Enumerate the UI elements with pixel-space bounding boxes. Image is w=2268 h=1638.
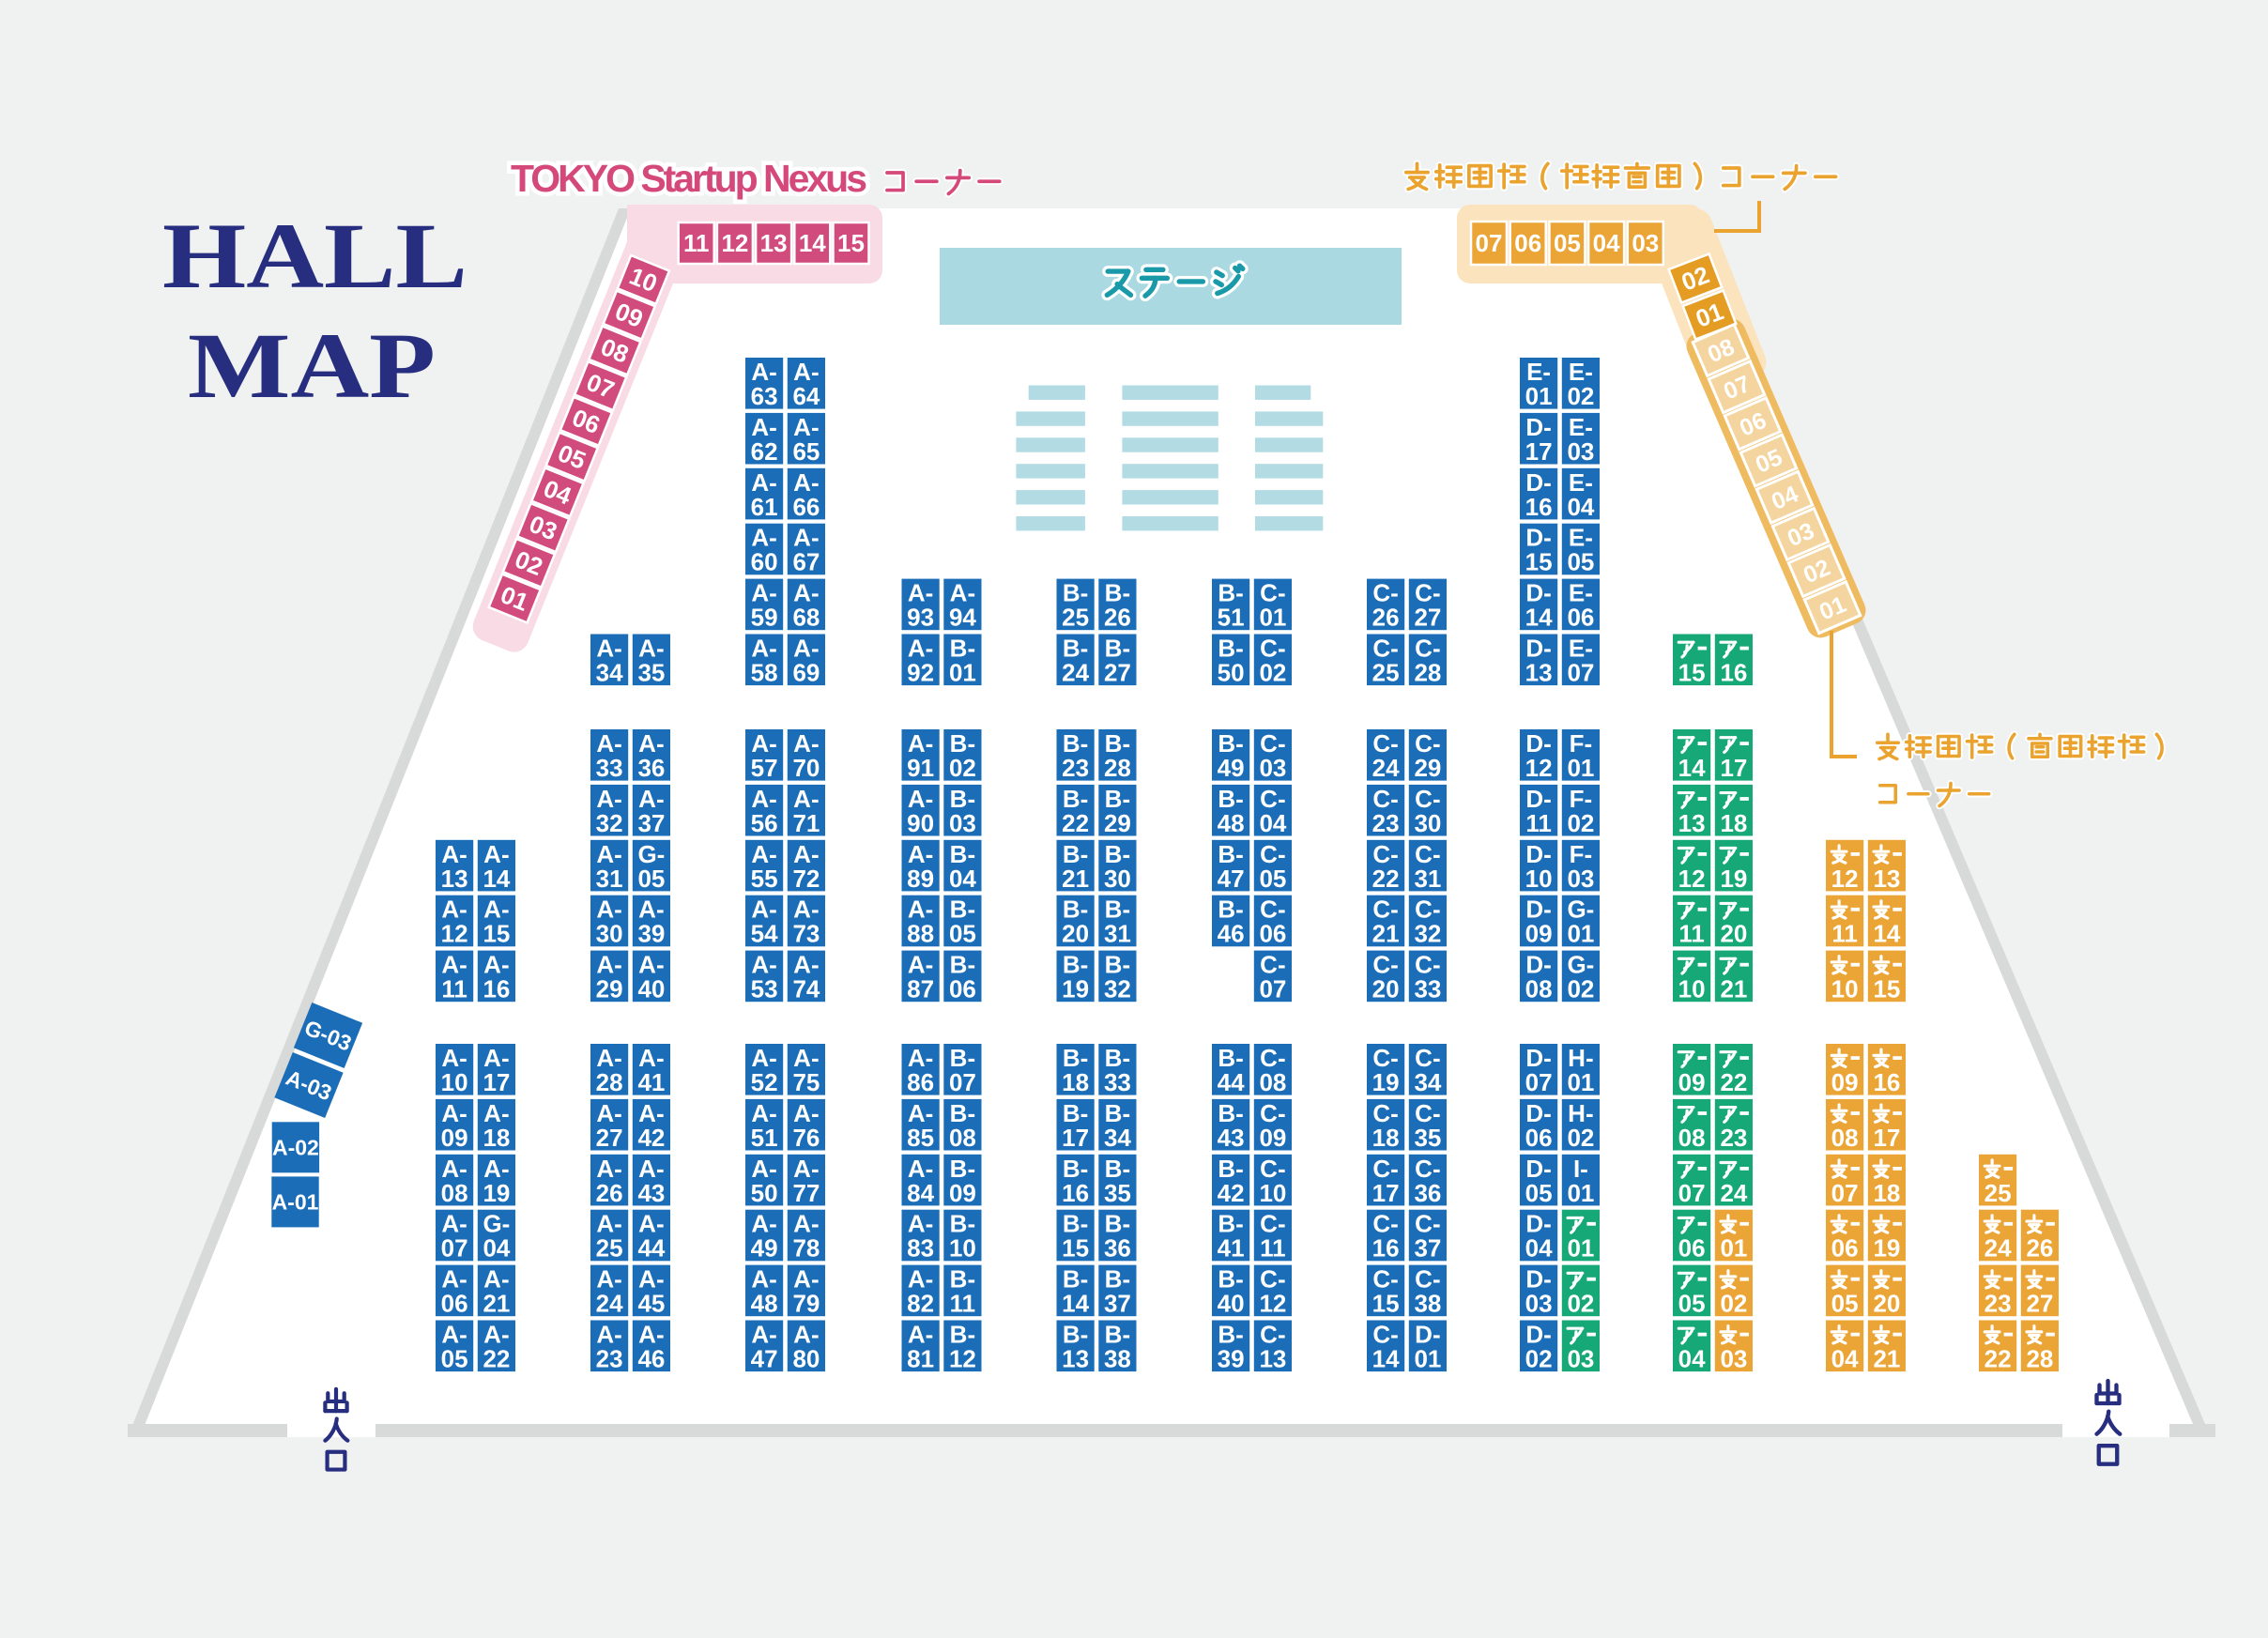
svg-text:A-02: A-02 xyxy=(272,1135,319,1159)
svg-text:25: 25 xyxy=(1984,1179,2012,1207)
svg-text:21: 21 xyxy=(1062,865,1089,893)
svg-text:21: 21 xyxy=(483,1290,510,1318)
svg-text:A-01: A-01 xyxy=(272,1189,319,1214)
svg-text:19: 19 xyxy=(1873,1234,1900,1263)
svg-text:26: 26 xyxy=(1104,604,1131,632)
svg-text:48: 48 xyxy=(1218,809,1245,837)
svg-text:08: 08 xyxy=(1678,1124,1706,1152)
svg-text:07: 07 xyxy=(1567,659,1594,687)
svg-text:06: 06 xyxy=(441,1290,468,1318)
svg-text:73: 73 xyxy=(792,920,820,948)
svg-text:86: 86 xyxy=(907,1068,934,1096)
svg-text:28: 28 xyxy=(1104,754,1131,782)
svg-text:10: 10 xyxy=(441,1068,468,1096)
svg-text:62: 62 xyxy=(751,437,778,466)
svg-text:15: 15 xyxy=(837,229,865,257)
svg-text:40: 40 xyxy=(1218,1290,1245,1318)
svg-text:12: 12 xyxy=(721,229,748,257)
svg-text:17: 17 xyxy=(1372,1179,1400,1207)
svg-text:14: 14 xyxy=(1678,754,1706,782)
svg-text:78: 78 xyxy=(792,1234,820,1263)
svg-text:16: 16 xyxy=(1720,659,1747,687)
svg-text:92: 92 xyxy=(907,659,934,687)
svg-text:03: 03 xyxy=(1567,437,1594,466)
svg-text:20: 20 xyxy=(1873,1290,1900,1318)
svg-text:18: 18 xyxy=(1873,1179,1900,1207)
svg-text:08: 08 xyxy=(441,1179,468,1207)
svg-text:45: 45 xyxy=(637,1290,665,1318)
svg-text:11: 11 xyxy=(1525,809,1552,837)
svg-text:61: 61 xyxy=(751,493,778,521)
svg-text:09: 09 xyxy=(1259,1124,1286,1152)
svg-text:14: 14 xyxy=(483,865,510,893)
svg-text:66: 66 xyxy=(792,493,820,521)
svg-text:19: 19 xyxy=(1720,865,1747,893)
svg-text:05: 05 xyxy=(441,1345,468,1373)
svg-text:32: 32 xyxy=(1104,975,1131,1003)
svg-text:16: 16 xyxy=(483,975,510,1003)
svg-text:13: 13 xyxy=(760,229,788,257)
svg-text:25: 25 xyxy=(1372,659,1400,687)
svg-text:23: 23 xyxy=(1062,754,1089,782)
svg-text:04: 04 xyxy=(1567,493,1594,521)
svg-text:06: 06 xyxy=(1525,1124,1553,1152)
svg-text:49: 49 xyxy=(751,1234,778,1263)
svg-text:16: 16 xyxy=(1062,1179,1089,1207)
svg-text:39: 39 xyxy=(1218,1345,1245,1373)
svg-text:41: 41 xyxy=(1218,1234,1245,1263)
svg-text:16: 16 xyxy=(1372,1234,1400,1263)
svg-text:06: 06 xyxy=(1259,920,1286,948)
svg-text:04: 04 xyxy=(483,1234,510,1263)
svg-text:02: 02 xyxy=(1567,1124,1594,1152)
svg-text:31: 31 xyxy=(1104,920,1131,948)
svg-text:34: 34 xyxy=(1414,1068,1441,1096)
svg-text:07: 07 xyxy=(441,1234,468,1263)
svg-text:57: 57 xyxy=(751,754,778,782)
svg-text:22: 22 xyxy=(1372,865,1400,893)
svg-text:17: 17 xyxy=(1525,437,1553,466)
svg-text:14: 14 xyxy=(1873,920,1900,948)
svg-text:11: 11 xyxy=(1260,1234,1286,1263)
svg-text:31: 31 xyxy=(1414,865,1441,893)
svg-text:03: 03 xyxy=(1567,1345,1594,1373)
svg-text:67: 67 xyxy=(792,548,820,576)
svg-text:05: 05 xyxy=(637,865,665,893)
svg-text:19: 19 xyxy=(1062,975,1089,1003)
svg-text:20: 20 xyxy=(1372,975,1400,1003)
svg-text:46: 46 xyxy=(637,1345,665,1373)
svg-text:05: 05 xyxy=(1259,865,1286,893)
svg-text:13: 13 xyxy=(1873,865,1900,893)
svg-text:01: 01 xyxy=(1567,1234,1594,1263)
svg-text:88: 88 xyxy=(907,920,934,948)
svg-text:26: 26 xyxy=(1372,604,1400,632)
svg-text:12: 12 xyxy=(1678,865,1706,893)
svg-text:82: 82 xyxy=(907,1290,934,1318)
svg-text:HALL: HALL xyxy=(162,204,467,308)
svg-text:11: 11 xyxy=(1831,920,1858,948)
svg-text:85: 85 xyxy=(907,1124,934,1152)
svg-text:29: 29 xyxy=(596,975,623,1003)
svg-text:68: 68 xyxy=(792,604,820,632)
svg-text:20: 20 xyxy=(1062,920,1089,948)
svg-text:07: 07 xyxy=(1831,1179,1859,1207)
svg-text:05: 05 xyxy=(1554,229,1581,257)
svg-text:02: 02 xyxy=(1567,1290,1594,1318)
svg-text:77: 77 xyxy=(792,1179,820,1207)
svg-text:25: 25 xyxy=(596,1234,623,1263)
svg-text:54: 54 xyxy=(751,920,778,948)
svg-text:21: 21 xyxy=(1720,975,1747,1003)
svg-text:23: 23 xyxy=(1372,809,1400,837)
svg-text:27: 27 xyxy=(1104,659,1131,687)
svg-text:17: 17 xyxy=(1873,1124,1900,1152)
svg-text:03: 03 xyxy=(1525,1290,1553,1318)
svg-text:03: 03 xyxy=(1720,1345,1747,1373)
svg-text:12: 12 xyxy=(949,1345,976,1373)
svg-text:41: 41 xyxy=(637,1068,665,1096)
svg-text:27: 27 xyxy=(1414,604,1441,632)
svg-text:33: 33 xyxy=(1414,975,1441,1003)
svg-text:14: 14 xyxy=(1525,604,1553,632)
svg-text:87: 87 xyxy=(907,975,934,1003)
svg-text:40: 40 xyxy=(637,975,665,1003)
svg-text:09: 09 xyxy=(1831,1068,1859,1096)
svg-text:01: 01 xyxy=(949,659,976,687)
svg-text:11: 11 xyxy=(683,229,710,257)
svg-text:27: 27 xyxy=(596,1124,623,1152)
svg-text:59: 59 xyxy=(751,604,778,632)
svg-text:36: 36 xyxy=(1414,1179,1441,1207)
svg-text:56: 56 xyxy=(751,809,778,837)
svg-text:37: 37 xyxy=(1104,1290,1131,1318)
svg-text:01: 01 xyxy=(1567,754,1594,782)
svg-text:33: 33 xyxy=(596,754,623,782)
svg-text:91: 91 xyxy=(907,754,934,782)
svg-text:15: 15 xyxy=(1062,1234,1089,1263)
svg-text:81: 81 xyxy=(907,1345,934,1373)
svg-text:38: 38 xyxy=(1104,1345,1131,1373)
svg-text:37: 37 xyxy=(637,809,665,837)
svg-text:22: 22 xyxy=(1720,1068,1747,1096)
svg-text:38: 38 xyxy=(1414,1290,1441,1318)
svg-text:08: 08 xyxy=(1831,1124,1859,1152)
svg-text:20: 20 xyxy=(1720,920,1747,948)
svg-text:11: 11 xyxy=(1678,920,1705,948)
svg-text:63: 63 xyxy=(751,382,778,410)
svg-text:10: 10 xyxy=(1525,865,1553,893)
svg-text:12: 12 xyxy=(441,920,468,948)
svg-text:17: 17 xyxy=(1720,754,1747,782)
svg-text:13: 13 xyxy=(441,865,468,893)
svg-text:09: 09 xyxy=(441,1124,468,1152)
svg-text:29: 29 xyxy=(1104,809,1131,837)
svg-text:74: 74 xyxy=(792,975,820,1003)
svg-text:23: 23 xyxy=(596,1345,623,1373)
svg-text:72: 72 xyxy=(792,865,820,893)
svg-text:06: 06 xyxy=(949,975,976,1003)
svg-text:MAP: MAP xyxy=(188,314,436,418)
svg-text:70: 70 xyxy=(792,754,820,782)
svg-text:31: 31 xyxy=(596,865,623,893)
svg-text:16: 16 xyxy=(1525,493,1553,521)
svg-text:01: 01 xyxy=(1259,604,1286,632)
svg-text:30: 30 xyxy=(1414,809,1441,837)
svg-text:02: 02 xyxy=(1720,1290,1747,1318)
svg-text:18: 18 xyxy=(1720,809,1747,837)
svg-text:16: 16 xyxy=(1873,1068,1900,1096)
svg-text:09: 09 xyxy=(1525,920,1553,948)
svg-text:10: 10 xyxy=(1678,975,1706,1003)
svg-text:19: 19 xyxy=(1372,1068,1400,1096)
svg-text:43: 43 xyxy=(637,1179,665,1207)
svg-text:26: 26 xyxy=(2026,1234,2053,1263)
svg-text:10: 10 xyxy=(949,1234,976,1263)
svg-text:12: 12 xyxy=(1831,865,1859,893)
svg-text:05: 05 xyxy=(1525,1179,1553,1207)
svg-text:24: 24 xyxy=(1062,659,1089,687)
svg-text:02: 02 xyxy=(1567,809,1594,837)
svg-text:23: 23 xyxy=(1720,1124,1747,1152)
svg-text:51: 51 xyxy=(751,1124,778,1152)
svg-text:26: 26 xyxy=(596,1179,623,1207)
svg-text:24: 24 xyxy=(1720,1179,1747,1207)
svg-text:93: 93 xyxy=(907,604,934,632)
svg-text:11: 11 xyxy=(441,975,467,1003)
svg-text:09: 09 xyxy=(1678,1068,1706,1096)
svg-text:42: 42 xyxy=(1218,1179,1245,1207)
svg-text:04: 04 xyxy=(1831,1345,1859,1373)
svg-text:29: 29 xyxy=(1414,754,1441,782)
svg-text:23: 23 xyxy=(1984,1290,2012,1318)
svg-text:55: 55 xyxy=(751,865,778,893)
svg-text:94: 94 xyxy=(949,604,976,632)
svg-text:02: 02 xyxy=(1259,659,1286,687)
svg-text:43: 43 xyxy=(1218,1124,1245,1152)
svg-text:07: 07 xyxy=(1525,1068,1553,1096)
svg-text:01: 01 xyxy=(1525,382,1553,410)
svg-text:01: 01 xyxy=(1720,1234,1747,1263)
svg-text:03: 03 xyxy=(949,809,976,837)
svg-text:84: 84 xyxy=(907,1179,934,1207)
svg-text:44: 44 xyxy=(1218,1068,1245,1096)
svg-text:28: 28 xyxy=(1414,659,1441,687)
svg-text:13: 13 xyxy=(1259,1345,1286,1373)
svg-text:13: 13 xyxy=(1062,1345,1089,1373)
svg-text:10: 10 xyxy=(1831,975,1859,1003)
svg-text:06: 06 xyxy=(1514,229,1541,257)
svg-text:22: 22 xyxy=(1984,1345,2012,1373)
svg-text:14: 14 xyxy=(799,229,826,257)
svg-text:58: 58 xyxy=(751,659,778,687)
svg-text:22: 22 xyxy=(1062,809,1089,837)
svg-text:15: 15 xyxy=(1678,659,1706,687)
svg-text:15: 15 xyxy=(483,920,510,948)
svg-text:17: 17 xyxy=(483,1068,510,1096)
svg-text:24: 24 xyxy=(596,1290,623,1318)
svg-text:65: 65 xyxy=(792,437,820,466)
svg-text:34: 34 xyxy=(596,659,623,687)
svg-text:80: 80 xyxy=(792,1345,820,1373)
svg-text:05: 05 xyxy=(1678,1290,1706,1318)
svg-text:01: 01 xyxy=(1567,1068,1594,1096)
svg-text:04: 04 xyxy=(1525,1234,1553,1263)
svg-text:11: 11 xyxy=(950,1290,976,1318)
svg-text:07: 07 xyxy=(1476,229,1503,257)
svg-text:15: 15 xyxy=(1873,975,1900,1003)
svg-text:03: 03 xyxy=(1259,754,1286,782)
svg-text:13: 13 xyxy=(1678,809,1706,837)
svg-text:02: 02 xyxy=(949,754,976,782)
svg-text:13: 13 xyxy=(1525,659,1553,687)
svg-text:03: 03 xyxy=(1632,229,1659,257)
svg-text:35: 35 xyxy=(1414,1124,1441,1152)
svg-text:30: 30 xyxy=(1104,865,1131,893)
svg-text:30: 30 xyxy=(596,920,623,948)
svg-text:44: 44 xyxy=(637,1234,665,1263)
svg-text:64: 64 xyxy=(792,382,820,410)
svg-text:04: 04 xyxy=(949,865,976,893)
svg-text:02: 02 xyxy=(1567,382,1594,410)
svg-text:15: 15 xyxy=(1525,548,1553,576)
svg-text:69: 69 xyxy=(792,659,820,687)
svg-text:52: 52 xyxy=(751,1068,778,1096)
svg-text:35: 35 xyxy=(1104,1179,1131,1207)
svg-text:83: 83 xyxy=(907,1234,934,1263)
svg-text:32: 32 xyxy=(1414,920,1441,948)
svg-text:08: 08 xyxy=(1525,975,1553,1003)
svg-text:49: 49 xyxy=(1218,754,1245,782)
svg-text:33: 33 xyxy=(1104,1068,1131,1096)
svg-text:36: 36 xyxy=(637,754,665,782)
svg-text:32: 32 xyxy=(596,809,623,837)
svg-text:08: 08 xyxy=(949,1124,976,1152)
svg-text:17: 17 xyxy=(1062,1124,1089,1152)
svg-text:07: 07 xyxy=(949,1068,976,1096)
svg-text:06: 06 xyxy=(1678,1234,1706,1263)
svg-text:09: 09 xyxy=(949,1179,976,1207)
svg-text:07: 07 xyxy=(1678,1179,1706,1207)
svg-text:06: 06 xyxy=(1831,1234,1859,1263)
svg-text:71: 71 xyxy=(792,809,820,837)
svg-text:19: 19 xyxy=(483,1179,510,1207)
svg-text:12: 12 xyxy=(1259,1290,1286,1318)
svg-text:28: 28 xyxy=(596,1068,623,1096)
svg-text:28: 28 xyxy=(2026,1345,2053,1373)
svg-text:18: 18 xyxy=(1062,1068,1089,1096)
svg-text:12: 12 xyxy=(1525,754,1553,782)
svg-text:05: 05 xyxy=(1831,1290,1859,1318)
svg-text:89: 89 xyxy=(907,865,934,893)
svg-text:01: 01 xyxy=(1567,1179,1594,1207)
svg-text:37: 37 xyxy=(1414,1234,1441,1263)
svg-text:90: 90 xyxy=(907,809,934,837)
svg-text:10: 10 xyxy=(1259,1179,1286,1207)
svg-text:50: 50 xyxy=(1218,659,1245,687)
svg-text:34: 34 xyxy=(1104,1124,1131,1152)
svg-text:27: 27 xyxy=(2026,1290,2053,1318)
svg-text:01: 01 xyxy=(1414,1345,1441,1373)
svg-text:79: 79 xyxy=(792,1290,820,1318)
svg-text:51: 51 xyxy=(1218,604,1245,632)
svg-text:04: 04 xyxy=(1593,229,1620,257)
svg-text:48: 48 xyxy=(751,1290,778,1318)
svg-text:60: 60 xyxy=(751,548,778,576)
svg-text:06: 06 xyxy=(1567,604,1594,632)
svg-text:35: 35 xyxy=(637,659,665,687)
svg-text:36: 36 xyxy=(1104,1234,1131,1263)
svg-text:18: 18 xyxy=(483,1124,510,1152)
svg-text:75: 75 xyxy=(792,1068,820,1096)
svg-text:15: 15 xyxy=(1372,1290,1400,1318)
svg-text:04: 04 xyxy=(1678,1345,1706,1373)
svg-text:02: 02 xyxy=(1567,975,1594,1003)
svg-text:50: 50 xyxy=(751,1179,778,1207)
svg-text:04: 04 xyxy=(1259,809,1286,837)
svg-text:42: 42 xyxy=(637,1124,665,1152)
svg-text:53: 53 xyxy=(751,975,778,1003)
svg-text:47: 47 xyxy=(751,1345,778,1373)
svg-text:76: 76 xyxy=(792,1124,820,1152)
svg-text:25: 25 xyxy=(1062,604,1089,632)
svg-text:03: 03 xyxy=(1567,865,1594,893)
svg-text:08: 08 xyxy=(1259,1068,1286,1096)
svg-text:22: 22 xyxy=(483,1345,510,1373)
svg-text:18: 18 xyxy=(1372,1124,1400,1152)
svg-text:46: 46 xyxy=(1218,920,1245,948)
svg-text:21: 21 xyxy=(1873,1345,1900,1373)
svg-text:07: 07 xyxy=(1259,975,1286,1003)
svg-text:47: 47 xyxy=(1218,865,1245,893)
svg-text:24: 24 xyxy=(1372,754,1400,782)
svg-text:05: 05 xyxy=(949,920,976,948)
svg-text:05: 05 xyxy=(1567,548,1594,576)
svg-text:02: 02 xyxy=(1525,1345,1553,1373)
svg-text:21: 21 xyxy=(1372,920,1400,948)
svg-text:14: 14 xyxy=(1062,1290,1089,1318)
svg-text:24: 24 xyxy=(1984,1234,2012,1263)
svg-text:14: 14 xyxy=(1372,1345,1400,1373)
svg-text:01: 01 xyxy=(1567,920,1594,948)
svg-text:39: 39 xyxy=(637,920,665,948)
svg-text:TOKYO Startup Nexus: TOKYO Startup Nexus xyxy=(511,157,867,200)
